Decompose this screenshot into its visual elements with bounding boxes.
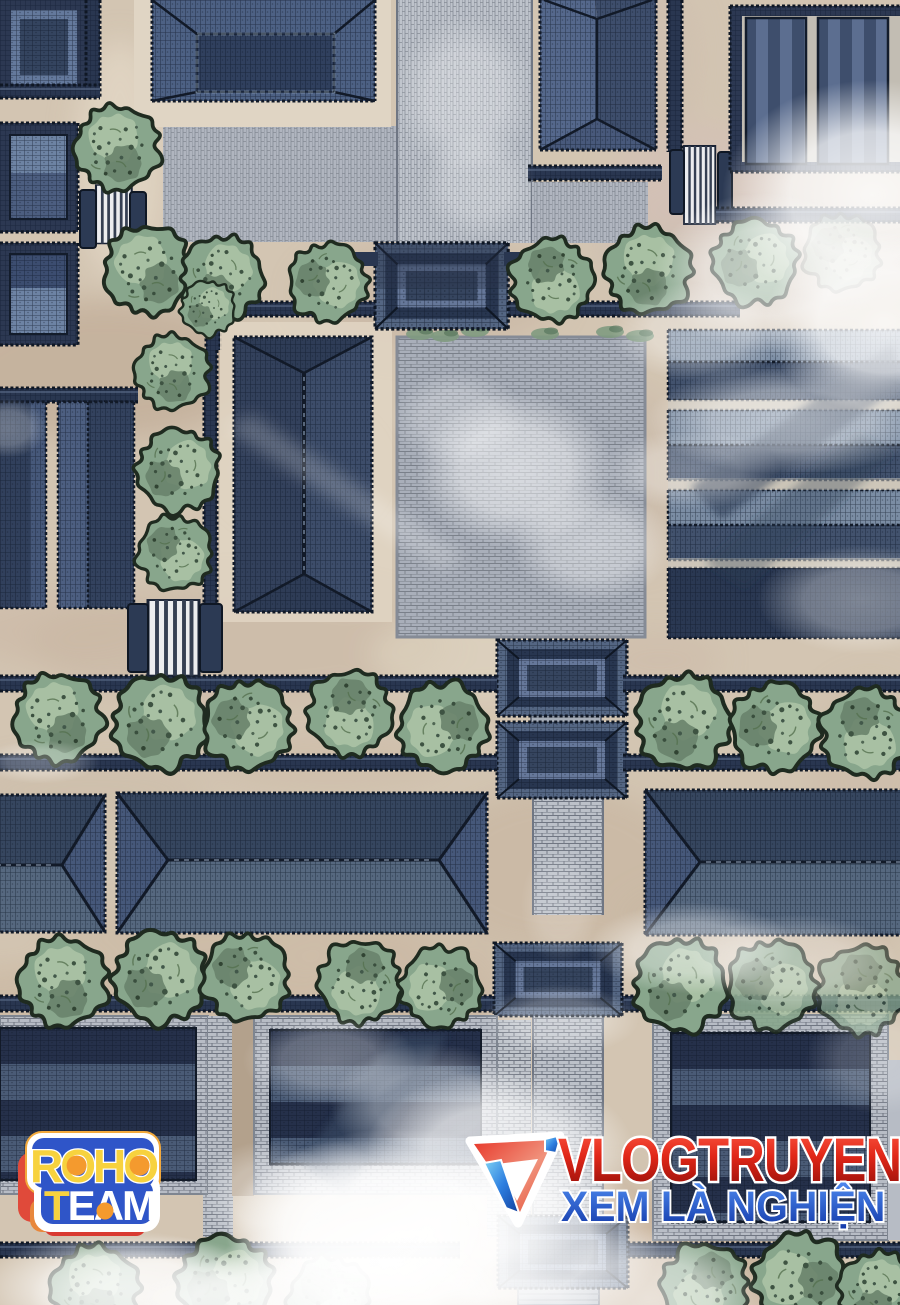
svg-text:T: T (44, 1182, 70, 1229)
svg-text:XEM LÀ NGHIỆN: XEM LÀ NGHIỆN (561, 1181, 885, 1230)
